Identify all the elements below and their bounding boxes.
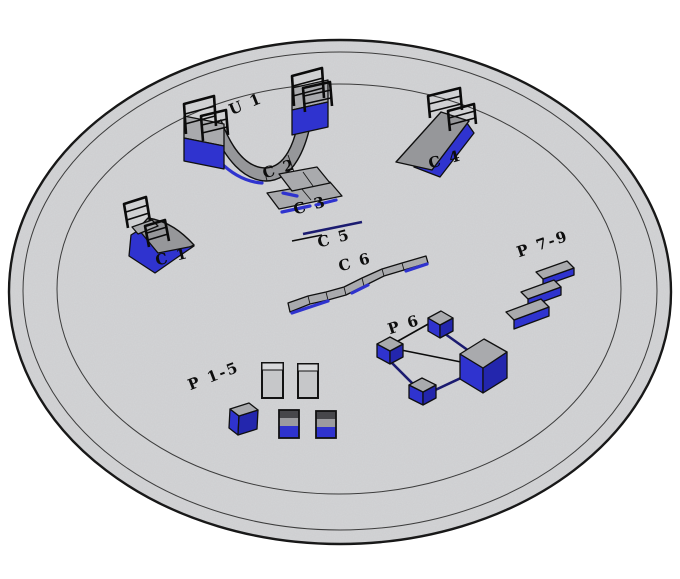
p1-5-slab-a [262, 363, 283, 398]
p1-5-cube-2 [279, 410, 299, 438]
p1-5-cube-3 [316, 411, 336, 438]
p1-5-cube-tilted [229, 403, 258, 435]
skatepark-3d-render: U 1 C 1 C 2 C 3 C 4 C 5 C 6 P 1-5 P 6 P … [0, 0, 680, 579]
scene-svg [0, 0, 680, 579]
p1-5-slab-b [298, 364, 318, 398]
